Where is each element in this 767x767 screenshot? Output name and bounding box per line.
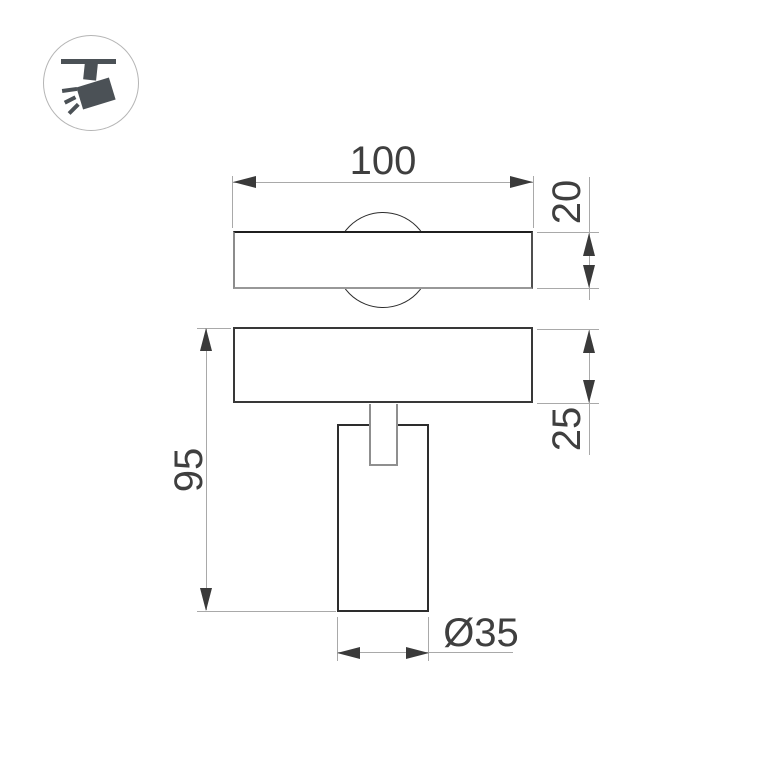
arrowhead-down [583,265,595,288]
extension-line [533,176,534,228]
track-plate-top-view [233,231,533,289]
light-ray-icon [68,103,80,115]
arrowhead-left [337,647,360,659]
arrowhead-down [200,588,212,611]
track-light-icon [44,36,138,130]
track-plate-side-view [233,327,533,403]
technical-drawing-canvas: 100 20 95 25 Ø35 [0,0,767,767]
light-ray-icon [62,87,77,93]
extension-line [197,611,336,612]
track-light-icon-badge [43,35,139,131]
dim-label-overall-height: 95 [169,430,209,510]
dim-label-body-diameter: Ø35 [421,613,541,653]
fixture-stem-icon [83,62,98,80]
light-ray-icon [64,95,76,104]
connector-stem-side-view [369,404,398,466]
dim-label-plate-height: 25 [547,389,587,469]
arrowhead-up [200,328,212,351]
dim-label-track-width: 100 [333,141,433,181]
fixture-head-icon [76,78,115,110]
arrowhead-left [233,176,256,188]
dim-label-track-height: 20 [547,162,587,242]
arrowhead-right [510,176,533,188]
arrowhead-up [583,330,595,353]
